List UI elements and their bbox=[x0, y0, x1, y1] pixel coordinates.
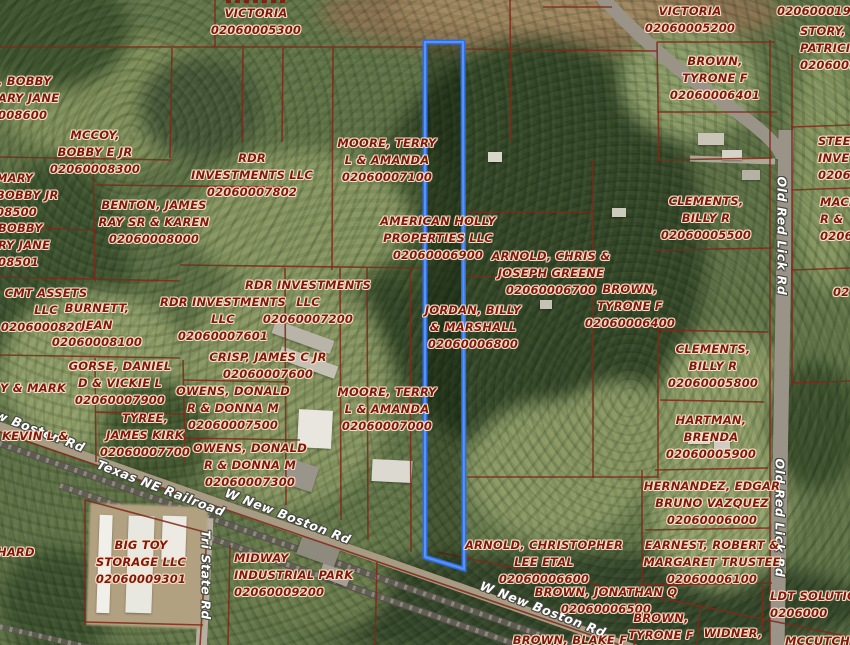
parcel-label-line: D & VICKIE L bbox=[69, 375, 172, 392]
parcel-label-line: 02060007601 bbox=[160, 328, 286, 345]
parcel-label-line: INDUSTRIAL PARK bbox=[234, 567, 353, 584]
parcel-label-mack: MACKR &0206 bbox=[820, 194, 850, 245]
parcel-label-brown-6401: BROWN,TYRONE F02060006401 bbox=[670, 53, 760, 104]
parcel-label-line: 02060007900 bbox=[69, 392, 172, 409]
parcel-label-bigtoy-9301: BIG TOYSTORAGE LLC02060009301 bbox=[96, 537, 186, 588]
parcel-label-clements-5800: CLEMENTS,BILLY R02060005800 bbox=[668, 341, 758, 392]
parcel-label-line: BILLY R bbox=[668, 358, 758, 375]
parcel-label-line: 02060009301 bbox=[96, 571, 186, 588]
parcel-label-line: R & DONNA M bbox=[193, 457, 307, 474]
parcel-label-line: PROPERTIES LLC bbox=[380, 230, 496, 247]
parcel-label-line: EARNEST, ROBERT & bbox=[643, 537, 780, 554]
parcel-label-brown-6400: BROWN,TYRONE F02060006400 bbox=[585, 281, 675, 332]
parcel-label-line: 0206 bbox=[818, 167, 850, 184]
parcel-label-line: 02060008100 bbox=[52, 334, 142, 351]
parcel-label-line: BROWN, bbox=[670, 53, 760, 70]
parcel-label-hartman-5900: HARTMAN,BRENDA02060005900 bbox=[666, 412, 756, 463]
parcel-label-line: 02 bbox=[833, 284, 849, 301]
parcel-label-rdr-7200: RDR INVESTMENTSLLC02060007200 bbox=[245, 277, 371, 328]
parcel-label-crisp-7600: CRISP, JAMES C JR02060007600 bbox=[209, 349, 326, 383]
parcel-label-burnett-8100: BURNETT,JEAN02060008100 bbox=[52, 300, 142, 351]
parcel-label-line: VICTORIA bbox=[211, 5, 301, 22]
parcel-label-line: 02060007500 bbox=[176, 417, 290, 434]
parcel-label-line: TYRONE F bbox=[585, 298, 675, 315]
parcel-label-brown-blake: BROWN, BLAKE F bbox=[513, 632, 628, 645]
parcel-label-line: 02060005800 bbox=[668, 375, 758, 392]
parcel-label-earnest-6100: EARNEST, ROBERT &MARGARET TRUSTEE0206000… bbox=[643, 537, 780, 588]
parcel-label-id-0190: 02060001901 bbox=[777, 3, 850, 20]
parcel-label-brown-tyrone-s: BROWN,TYRONE F bbox=[628, 610, 694, 644]
parcel-label-line: BILLY R bbox=[661, 210, 751, 227]
parcel-label-line: RDR INVESTMENTS bbox=[245, 277, 371, 294]
parcel-label-line: HERNANDEZ, EDGAR bbox=[644, 478, 780, 495]
parcel-label-ldt-solutions: LDT SOLUTIO0206000 bbox=[770, 588, 850, 622]
parcel-label-line: 02060008300 bbox=[50, 161, 140, 178]
parcel-label-line: LEE ETAL bbox=[465, 554, 623, 571]
parcel-label-line: TYRONE F bbox=[628, 627, 694, 644]
parcel-label-line: 020600018 bbox=[800, 57, 850, 74]
parcel-label-line: PATRICIA bbox=[800, 40, 850, 57]
parcel-label-line: BOBBY JR bbox=[0, 187, 59, 204]
parcel-label-widner: WIDNER, bbox=[704, 625, 763, 642]
parcel-label-line: STORY, bbox=[800, 23, 850, 40]
parcel-label-line: L & AMANDA bbox=[337, 152, 436, 169]
parcel-label-line: 02060007200 bbox=[245, 311, 371, 328]
parcel-label-line: HARD bbox=[0, 544, 35, 561]
parcel-label-line: BRUNO VAZQUEZ bbox=[644, 495, 780, 512]
parcel-label-arnold-6600: ARNOLD, CHRISTOPHERLEE ETAL02060006600 bbox=[465, 537, 623, 588]
parcel-label-victoria-5200: VICTORIA02060005200 bbox=[645, 3, 735, 37]
parcel-label-owens-7300: OWENS, DONALDR & DONNA M02060007300 bbox=[193, 440, 307, 491]
parcel-label-line: RAY SR & KAREN bbox=[99, 214, 210, 231]
parcel-label-line: 02060006400 bbox=[585, 315, 675, 332]
parcel-label-line: TYRONE F bbox=[670, 70, 760, 87]
parcel-label-line: 02060007300 bbox=[193, 474, 307, 491]
parcel-label-mary-8500: MARYBOBBY JR08500 bbox=[0, 170, 59, 221]
parcel-label-story-patricia: STORY,PATRICIA020600018 bbox=[800, 23, 850, 74]
parcel-label-line: BROWN, bbox=[585, 281, 675, 298]
parcel-label-mccoy-8300: MCCOY,BOBBY E JR02060008300 bbox=[50, 127, 140, 178]
parcel-label-line: RY JANE bbox=[0, 237, 50, 254]
parcel-label-line: AMERICAN HOLLY bbox=[380, 213, 496, 230]
parcel-label-line: LDT SOLUTIO bbox=[770, 588, 850, 605]
parcel-label-line: CLEMENTS, bbox=[668, 341, 758, 358]
parcel-label-line: 02060006900 bbox=[380, 247, 496, 264]
parcel-label-benton-8000: BENTON, JAMESRAY SR & KAREN02060008000 bbox=[99, 197, 210, 248]
parcel-label-line: RDR bbox=[191, 150, 313, 167]
parcel-label-line: 02060005300 bbox=[211, 22, 301, 39]
parcel-label-line: ARNOLD, CHRIS & bbox=[492, 248, 611, 265]
parcel-label-line: 0206 bbox=[820, 228, 850, 245]
gis-map-view: { "canvas": {"width": 850, "height": 645… bbox=[0, 0, 850, 645]
parcel-label-midway-9200: MIDWAYINDUSTRIAL PARK02060009200 bbox=[234, 550, 353, 601]
map-canvas[interactable]: Texas NE RailroadW New Boston RdW New Bo… bbox=[0, 0, 850, 645]
parcel-label-line: JORDAN, BILLY bbox=[425, 302, 521, 319]
parcel-label-line: BROWN, JONATHAN Q bbox=[535, 584, 678, 601]
parcel-label-line: 02060001901 bbox=[777, 3, 850, 20]
parcel-label-line: VICTORIA bbox=[645, 3, 735, 20]
parcel-label-line: 02060006000 bbox=[644, 512, 780, 529]
parcel-label-line: ARNOLD, CHRISTOPHER bbox=[465, 537, 623, 554]
parcel-label-line: L & AMANDA bbox=[337, 401, 436, 418]
parcel-label-line: MOORE, TERRY bbox=[337, 135, 436, 152]
parcel-label-line: BOBBY bbox=[0, 220, 50, 237]
parcel-label-line: JAMES KIRK bbox=[100, 427, 190, 444]
parcel-label-owens-7500: OWENS, DONALDR & DONNA M02060007500 bbox=[176, 383, 290, 434]
parcel-label-hernandez-6000: HERNANDEZ, EDGARBRUNO VAZQUEZ02060006000 bbox=[644, 478, 780, 529]
parcel-label-line: BROWN, BLAKE F bbox=[513, 632, 628, 645]
parcel-label-line: BOBBY E JR bbox=[50, 144, 140, 161]
parcel-label-line: CRISP, JAMES C JR bbox=[209, 349, 326, 366]
parcel-label-line: 08501 bbox=[0, 254, 50, 271]
parcel-label-line: INVESTMENTS LLC bbox=[191, 167, 313, 184]
parcel-label-line: HARTMAN, bbox=[666, 412, 756, 429]
parcel-label-line: , BOBBY bbox=[0, 73, 59, 90]
parcel-label-gorse-7900: GORSE, DANIELD & VICKIE L02060007900 bbox=[69, 358, 172, 409]
parcel-label-line: 0206000 bbox=[770, 605, 850, 622]
parcel-label-clements-5500: CLEMENTS,BILLY R02060005500 bbox=[661, 193, 751, 244]
parcel-label-line: 02060008000 bbox=[99, 231, 210, 248]
parcel-label-kevin-l: KEVIN L & bbox=[2, 428, 69, 445]
parcel-label-american-holly-6900: AMERICAN HOLLYPROPERTIES LLC02060006900 bbox=[380, 213, 496, 264]
parcel-label-line: JEAN bbox=[52, 317, 142, 334]
parcel-label-line: & MARSHALL bbox=[425, 319, 521, 336]
parcel-label-line: BURNETT, bbox=[52, 300, 142, 317]
parcel-label-line: STORAGE LLC bbox=[96, 554, 186, 571]
parcel-label-line: MCCUTCH bbox=[785, 633, 850, 645]
parcel-label-line: OWENS, DONALD bbox=[193, 440, 307, 457]
parcel-label-line: STEE bbox=[818, 133, 850, 150]
parcel-label-line: Y & MARK bbox=[0, 380, 66, 397]
parcel-label-line: WIDNER, bbox=[704, 625, 763, 642]
road-label-tri-state: Tri State Rd bbox=[199, 530, 214, 620]
clipped-label-fragment bbox=[226, 0, 288, 3]
parcel-label-line: 02060007000 bbox=[337, 418, 436, 435]
parcel-label-hard: HARD bbox=[0, 544, 35, 561]
parcel-label-line: R & DONNA M bbox=[176, 400, 290, 417]
parcel-label-line: 02060007600 bbox=[209, 366, 326, 383]
parcel-label-line: R & bbox=[820, 211, 850, 228]
parcel-label-line: LLC bbox=[245, 294, 371, 311]
parcel-label-bobby-8600: , BOBBYARY JANE008600 bbox=[0, 73, 59, 124]
parcel-label-tyree-7700: TYREE,JAMES KIRK02060007700 bbox=[100, 410, 190, 461]
parcel-label-line: BIG TOY bbox=[96, 537, 186, 554]
parcel-label-moore-7100: MOORE, TERRYL & AMANDA02060007100 bbox=[337, 135, 436, 186]
parcel-label-line: GORSE, DANIEL bbox=[69, 358, 172, 375]
parcel-label-line: MARGARET TRUSTEE bbox=[643, 554, 780, 571]
parcel-label-line: 02060007100 bbox=[337, 169, 436, 186]
parcel-label-line: 02060006800 bbox=[425, 336, 521, 353]
parcel-label-line: BENTON, JAMES bbox=[99, 197, 210, 214]
parcel-label-line: ARY JANE bbox=[0, 90, 59, 107]
parcel-label-line: INVE bbox=[818, 150, 850, 167]
parcel-label-line: 008600 bbox=[0, 107, 59, 124]
parcel-label-line: MOORE, TERRY bbox=[337, 384, 436, 401]
parcel-label-line: 02060005200 bbox=[645, 20, 735, 37]
parcel-label-line: 02060009200 bbox=[234, 584, 353, 601]
parcel-label-line: TYREE, bbox=[100, 410, 190, 427]
parcel-label-moore-7000: MOORE, TERRYL & AMANDA02060007000 bbox=[337, 384, 436, 435]
parcel-label-steel-inv: STEEINVE0206 bbox=[818, 133, 850, 184]
parcel-label-line: 02060007700 bbox=[100, 444, 190, 461]
parcel-label-line: MIDWAY bbox=[234, 550, 353, 567]
parcel-label-line: MCCOY, bbox=[50, 127, 140, 144]
parcel-label-line: BRENDA bbox=[666, 429, 756, 446]
parcel-label-victoria-5300: VICTORIA02060005300 bbox=[211, 5, 301, 39]
parcel-label-bobby-8501: BOBBYRY JANE08501 bbox=[0, 220, 50, 271]
parcel-label-y-mark: Y & MARK bbox=[0, 380, 66, 397]
parcel-label-line: MARY bbox=[0, 170, 59, 187]
parcel-label-mccutch: MCCUTCH bbox=[785, 633, 850, 645]
parcel-label-line: OWENS, DONALD bbox=[176, 383, 290, 400]
parcel-label-line: 02060005900 bbox=[666, 446, 756, 463]
parcel-label-line: 02060005500 bbox=[661, 227, 751, 244]
parcel-label-line: KEVIN L & bbox=[2, 428, 69, 445]
road-label-old-red-lick-1: Old Red Lick Rd bbox=[775, 177, 790, 296]
parcel-label-frag-02: 02 bbox=[833, 284, 849, 301]
parcel-label-line: BROWN, bbox=[628, 610, 694, 627]
parcel-label-line: 08500 bbox=[0, 204, 59, 221]
parcel-label-line: MACK bbox=[820, 194, 850, 211]
parcel-label-line: CLEMENTS, bbox=[661, 193, 751, 210]
parcel-label-line: JOSEPH GREENE bbox=[492, 265, 611, 282]
parcel-label-line: 02060006401 bbox=[670, 87, 760, 104]
parcel-label-rdr-7802: RDRINVESTMENTS LLC02060007802 bbox=[191, 150, 313, 201]
parcel-label-jordan-6800: JORDAN, BILLY& MARSHALL02060006800 bbox=[425, 302, 521, 353]
